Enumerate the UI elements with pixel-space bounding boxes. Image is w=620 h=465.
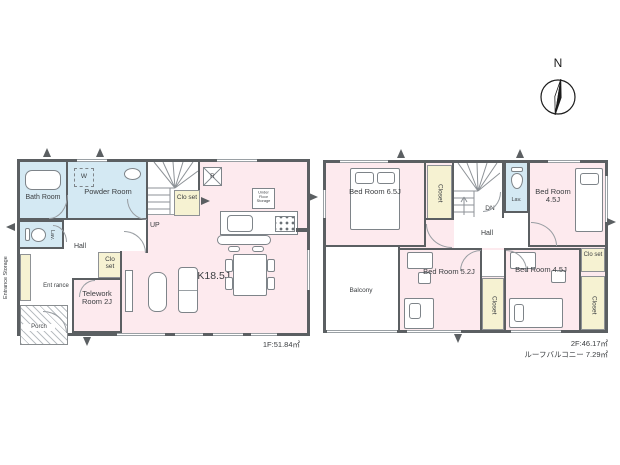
- door-arc: [460, 250, 481, 271]
- sofa-icon: [178, 267, 198, 313]
- window: [117, 333, 165, 336]
- pillow-icon: [355, 172, 374, 184]
- closet-top: Closet: [427, 165, 452, 219]
- vent-marker: [516, 149, 524, 158]
- vent-marker: [83, 337, 91, 346]
- bed-icon: [404, 298, 434, 329]
- closet-right-label: Closet: [590, 285, 597, 325]
- wall: [326, 245, 426, 247]
- bed-icon: [350, 168, 400, 230]
- compass-north-label: N: [554, 56, 563, 70]
- coffee-table: [148, 272, 167, 312]
- compass: N: [534, 54, 582, 124]
- closet-mid-label: Closet: [490, 285, 497, 325]
- stool-icon: [252, 246, 264, 252]
- wall: [120, 251, 122, 333]
- bed-icon: [575, 168, 603, 232]
- kitchen-sink-icon: [227, 215, 253, 232]
- window: [327, 330, 397, 333]
- wall: [424, 163, 426, 247]
- chair-icon: [267, 259, 275, 272]
- toilet-icon: [31, 228, 46, 242]
- window: [213, 333, 243, 336]
- sofa-cushion-line: [179, 290, 197, 291]
- hall-2f-label: Hall: [475, 230, 499, 238]
- small-closet: Clo set: [581, 248, 605, 272]
- wall: [579, 248, 581, 330]
- hall-closet: Clo set: [98, 252, 122, 278]
- wall: [452, 163, 454, 220]
- stair-closet: Clo set: [174, 190, 200, 216]
- stairs-2f: DN: [454, 163, 502, 218]
- closet-mid: Closet: [482, 278, 504, 330]
- entrance-label: Ent rance: [43, 283, 69, 290]
- chair-icon: [225, 259, 233, 272]
- pillow-icon: [409, 303, 421, 319]
- closet-right: Closet: [581, 276, 605, 330]
- toilet-tank-icon: [25, 228, 30, 241]
- floor2-area-label: 2F:46.17㎡: [475, 340, 608, 348]
- door-arc: [531, 222, 557, 246]
- vent-marker: [607, 218, 616, 226]
- window: [77, 159, 107, 162]
- window: [307, 250, 310, 290]
- small-closet-label: Clo set: [583, 252, 603, 259]
- wall: [528, 163, 530, 247]
- powder-room-label: Powder Room: [82, 188, 134, 196]
- entrance-storage-label: Entrance Storage: [4, 247, 10, 309]
- bathtub-icon: [25, 170, 61, 190]
- window: [548, 160, 580, 163]
- bed-45-top-label: Bed Room 4.5J: [529, 188, 577, 205]
- chair-icon: [267, 277, 275, 290]
- window: [251, 333, 277, 336]
- wall: [400, 248, 480, 250]
- refrigerator-label: R: [204, 173, 221, 180]
- stove-icon: [275, 216, 295, 232]
- wall: [146, 215, 148, 253]
- wall: [482, 276, 504, 277]
- telework-room: Telework Room 2J: [72, 278, 122, 333]
- door-arc: [426, 224, 452, 248]
- vent-marker: [6, 223, 15, 231]
- window: [605, 176, 608, 222]
- roof-balcony-area-label: ルーフバルコニー 7.29㎡: [458, 351, 608, 359]
- window: [407, 330, 461, 333]
- pillow-icon: [514, 304, 524, 322]
- chair-icon: [225, 277, 233, 290]
- window: [175, 333, 203, 336]
- pillow-icon: [377, 172, 395, 184]
- floorplan-image: N Bath Room W Powder Room Clo: [0, 0, 620, 465]
- floor-1-plan: Bath Room W Powder Room Clo set UP Lav. …: [17, 159, 310, 336]
- window: [323, 190, 326, 218]
- toilet-tank-icon: [511, 167, 523, 172]
- entrance-storage-cabinet: [20, 254, 31, 301]
- washing-machine-label: W: [74, 173, 94, 180]
- stair-closet-label: Clo set: [176, 194, 198, 201]
- under-floor-storage: Under Floor Storage: [252, 188, 275, 209]
- balcony-label: Balcony: [330, 287, 392, 294]
- stool-icon: [228, 246, 240, 252]
- lavatory-2f-label: Lav.: [506, 197, 527, 203]
- bed-icon: [509, 298, 563, 328]
- lavatory-2f: Lav.: [504, 163, 529, 213]
- window: [511, 330, 561, 333]
- bed-65-label: Bed Room 6.5J: [349, 188, 401, 196]
- kitchen-bar: [217, 235, 271, 245]
- vent-marker: [397, 149, 405, 158]
- wall: [426, 218, 454, 220]
- tv-board: [125, 270, 133, 312]
- compass-needle: [552, 79, 564, 116]
- vent-marker: [309, 193, 318, 201]
- floor-2-plan: Balcony Bed Room 6.5J Closet DN Lav.: [323, 160, 608, 333]
- floor1-area-label: 1F:51.84㎡: [170, 341, 300, 349]
- refrigerator-space: R: [203, 167, 222, 186]
- dining-table: [233, 254, 267, 296]
- vent-marker: [96, 148, 104, 157]
- wall: [398, 247, 400, 330]
- closet-top-label: Closet: [436, 172, 443, 214]
- hall-1f-label: Hall: [65, 243, 95, 251]
- under-floor-storage-label: Under Floor Storage: [255, 191, 271, 204]
- balcony-area: Balcony: [326, 247, 398, 330]
- window: [340, 160, 388, 163]
- sink-icon: [124, 168, 141, 180]
- hall-closet-label: Clo set: [100, 256, 120, 271]
- vent-marker: [43, 148, 51, 157]
- wall: [506, 248, 579, 250]
- window: [217, 159, 257, 162]
- vent-marker: [454, 334, 462, 343]
- wall: [17, 159, 310, 162]
- wall: [307, 159, 310, 336]
- wall: [323, 160, 326, 333]
- kitchen-counter: [220, 211, 298, 235]
- corridor-area: [482, 250, 504, 276]
- wall: [296, 228, 307, 232]
- up-label: UP: [150, 222, 174, 230]
- closet-door-arrow: [201, 197, 210, 205]
- wall: [502, 163, 504, 218]
- pillow-icon: [580, 173, 599, 185]
- toilet-icon: [511, 173, 523, 189]
